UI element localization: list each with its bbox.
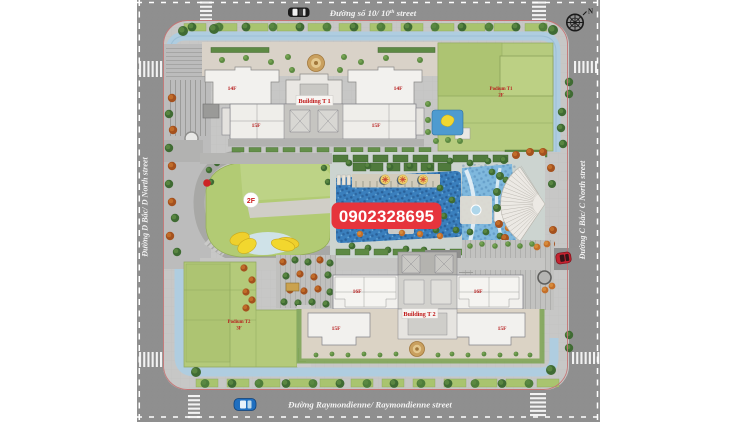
svg-text:Đường C Bắc/ C North street: Đường C Bắc/ C North street bbox=[578, 160, 587, 260]
svg-text:15F: 15F bbox=[498, 326, 508, 332]
svg-text:2F: 2F bbox=[247, 198, 256, 205]
svg-text:16F: 16F bbox=[474, 289, 484, 295]
svg-text:Podium T2: Podium T2 bbox=[228, 320, 251, 325]
svg-text:14F: 14F bbox=[228, 86, 238, 92]
svg-text:Đường số 10/ 10th street: Đường số 10/ 10th street bbox=[329, 8, 417, 18]
svg-text:2F: 2F bbox=[498, 94, 503, 99]
svg-text:15F: 15F bbox=[372, 123, 382, 129]
svg-text:16F: 16F bbox=[353, 289, 363, 295]
svg-text:15F: 15F bbox=[332, 326, 342, 332]
svg-text:15F: 15F bbox=[252, 123, 262, 129]
svg-text:0902328695: 0902328695 bbox=[339, 207, 434, 226]
svg-text:14F: 14F bbox=[394, 86, 404, 92]
svg-text:Building T 2: Building T 2 bbox=[403, 311, 435, 318]
svg-text:3F: 3F bbox=[236, 327, 241, 332]
svg-text:Building T 1: Building T 1 bbox=[298, 98, 330, 105]
svg-text:N: N bbox=[588, 8, 593, 16]
svg-text:Đường D Bắc/ D North street: Đường D Bắc/ D North street bbox=[141, 156, 150, 257]
svg-text:Đường Raymondienne/ Raymondien: Đường Raymondienne/ Raymondienne street bbox=[287, 400, 452, 410]
svg-text:Podium T1: Podium T1 bbox=[490, 87, 513, 92]
